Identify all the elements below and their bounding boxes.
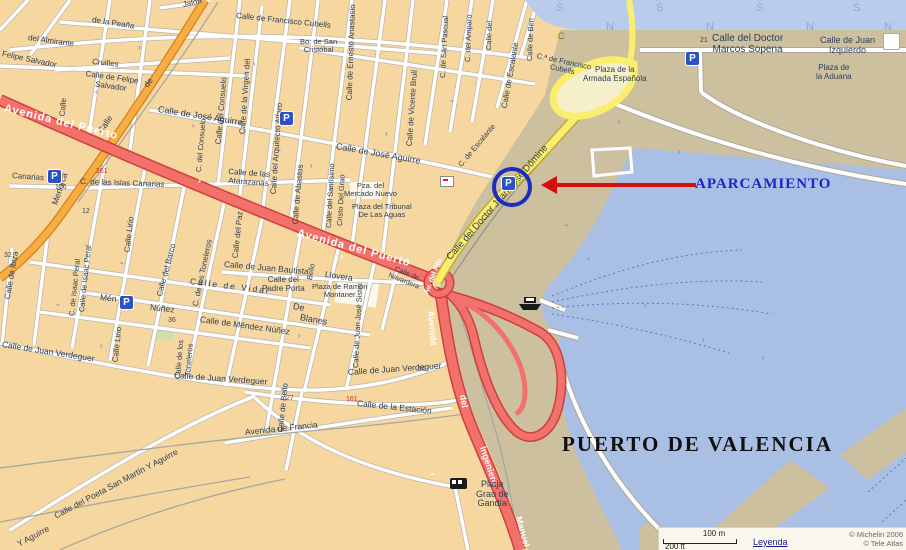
copyright: © Michelin 2006 © Tele Atlas: [849, 530, 903, 549]
aparcamiento-label: APARCAMIENTO: [695, 176, 831, 193]
parking-icon[interactable]: P: [120, 296, 133, 309]
copyright-michelin: © Michelin 2006: [849, 530, 903, 539]
annotation-arrow-line: [556, 183, 696, 187]
annotation-arrow-head: [541, 176, 557, 194]
parking-icon[interactable]: P: [48, 170, 61, 183]
port-title: PUERTO DE VALENCIA: [562, 432, 833, 457]
scale-meters: 100 m: [679, 529, 749, 538]
parking-icon[interactable]: P: [686, 52, 699, 65]
scale-feet: 200 ft: [665, 542, 685, 550]
parking-icon[interactable]: P: [280, 112, 293, 125]
parking-highlight-ring[interactable]: [492, 167, 532, 207]
leyenda-link[interactable]: Leyenda: [753, 537, 788, 547]
map-viewport: JalónCalle de Francisco Cubellsde la Pea…: [0, 0, 906, 550]
parking-layer: PPPPP: [0, 0, 906, 550]
copyright-teleatlas: © Tele Atlas: [849, 539, 903, 548]
legend-bar: 100 m 200 ft Leyenda © Michelin 2006 © T…: [658, 527, 906, 550]
